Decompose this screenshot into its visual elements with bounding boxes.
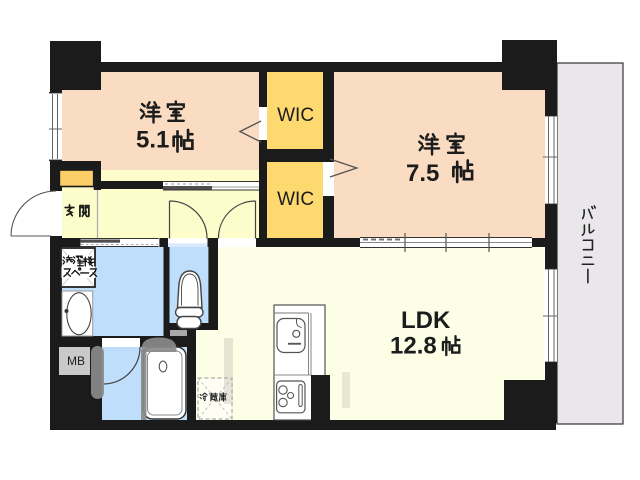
svg-text:12.8: 12.8 — [390, 333, 437, 360]
svg-text:WIC: WIC — [277, 105, 314, 126]
svg-text:MB: MB — [67, 354, 85, 368]
svg-text:WIC: WIC — [277, 189, 314, 210]
svg-text:7.5: 7.5 — [406, 160, 439, 187]
svg-text:LDK: LDK — [401, 307, 451, 334]
svg-text:5.1: 5.1 — [136, 127, 169, 154]
